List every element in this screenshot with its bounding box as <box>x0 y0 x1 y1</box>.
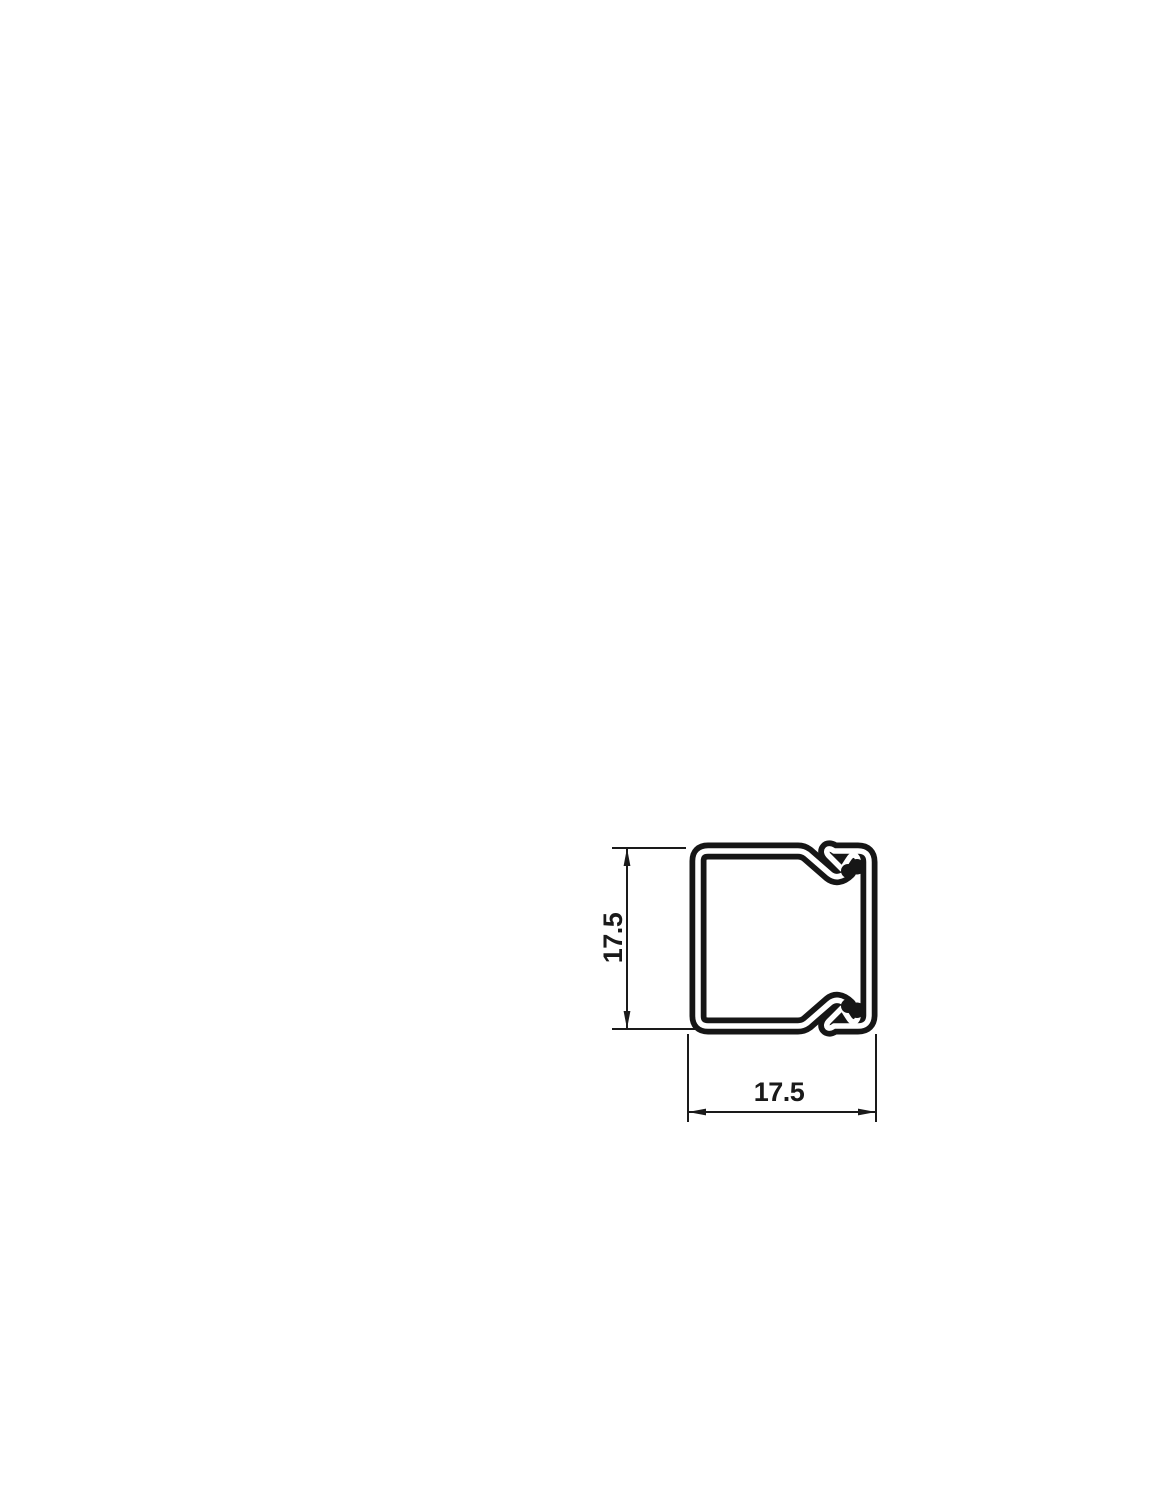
dim-width-label: 17.5 <box>754 1077 805 1107</box>
dim-height-label: 17.5 <box>598 912 628 963</box>
technical-drawing: 17.5 17.5 <box>0 0 1159 1500</box>
profile-body-outline <box>698 851 848 1026</box>
arrow-down-icon <box>624 1011 631 1029</box>
dimension-width: 17.5 <box>688 1034 876 1122</box>
hook-tip-bottom-cover <box>850 1004 864 1018</box>
profile-cross-section <box>698 849 869 1028</box>
arrow-right-icon <box>858 1109 876 1116</box>
arrow-up-icon <box>624 848 631 866</box>
hook-tip-top-cover <box>850 859 864 873</box>
drawing-page: 17.5 17.5 <box>0 0 1159 1500</box>
arrow-left-icon <box>688 1109 706 1116</box>
dimension-height: 17.5 <box>598 848 700 1029</box>
